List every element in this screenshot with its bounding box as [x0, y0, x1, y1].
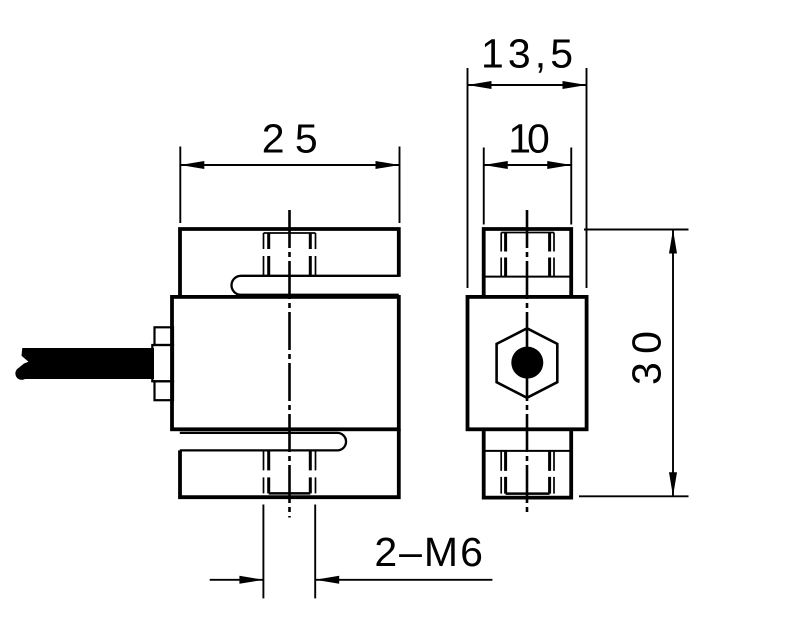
svg-text:2–M6: 2–M6 [374, 529, 485, 575]
svg-text:13,5: 13,5 [481, 31, 573, 77]
svg-text:10: 10 [508, 116, 549, 162]
